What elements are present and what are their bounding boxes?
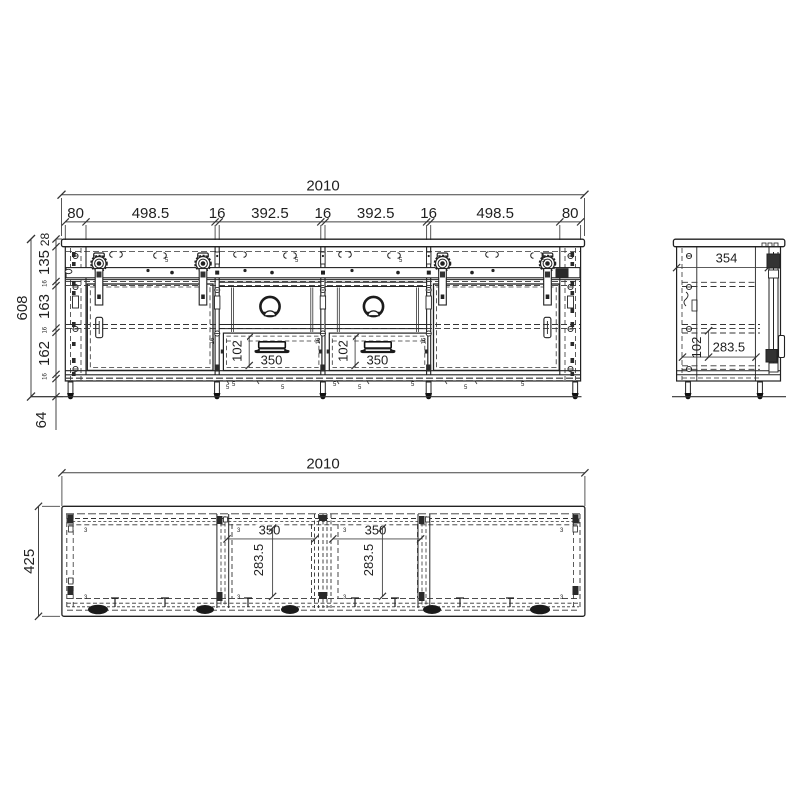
- svg-text:392.5: 392.5: [251, 205, 289, 222]
- svg-text:425: 425: [21, 549, 38, 574]
- svg-text:64: 64: [33, 412, 50, 429]
- svg-text:3: 3: [84, 595, 88, 601]
- svg-text:80: 80: [67, 205, 84, 222]
- svg-text:5: 5: [281, 385, 285, 391]
- svg-text:5: 5: [358, 385, 362, 391]
- svg-text:3: 3: [343, 528, 347, 534]
- svg-text:2010: 2010: [306, 178, 339, 195]
- svg-text:3: 3: [560, 595, 564, 601]
- svg-text:16: 16: [316, 337, 322, 344]
- svg-text:498.5: 498.5: [476, 205, 514, 222]
- svg-text:608: 608: [14, 295, 31, 320]
- svg-text:350: 350: [261, 353, 283, 368]
- svg-text:135: 135: [36, 250, 53, 275]
- svg-text:5: 5: [464, 385, 468, 391]
- svg-text:16: 16: [209, 205, 226, 222]
- svg-text:350: 350: [259, 523, 281, 538]
- svg-text:5: 5: [399, 258, 403, 264]
- svg-text:3: 3: [560, 528, 564, 534]
- svg-text:392.5: 392.5: [357, 205, 395, 222]
- svg-text:498.5: 498.5: [132, 205, 170, 222]
- svg-text:283.5: 283.5: [251, 544, 266, 577]
- svg-text:3: 3: [84, 528, 88, 534]
- svg-text:102: 102: [689, 337, 704, 359]
- svg-text:16: 16: [422, 337, 428, 344]
- svg-text:16: 16: [420, 205, 437, 222]
- svg-text:3: 3: [237, 528, 241, 534]
- svg-text:5: 5: [333, 382, 337, 388]
- svg-text:3: 3: [237, 595, 241, 601]
- svg-text:80: 80: [562, 205, 579, 222]
- svg-text:102: 102: [230, 340, 245, 362]
- svg-text:350: 350: [367, 353, 389, 368]
- svg-text:102: 102: [335, 340, 350, 362]
- svg-text:162: 162: [36, 341, 53, 366]
- svg-text:16: 16: [43, 326, 49, 333]
- svg-text:5: 5: [411, 382, 415, 388]
- svg-text:2010: 2010: [306, 456, 339, 473]
- svg-text:283.5: 283.5: [361, 544, 376, 577]
- svg-text:163: 163: [36, 294, 53, 319]
- svg-text:16: 16: [43, 373, 49, 380]
- svg-text:16: 16: [43, 280, 49, 287]
- svg-text:5: 5: [165, 258, 169, 264]
- svg-text:3: 3: [343, 595, 347, 601]
- svg-text:283.5: 283.5: [713, 340, 746, 355]
- svg-text:350: 350: [365, 523, 387, 538]
- svg-text:16: 16: [315, 205, 332, 222]
- svg-text:354: 354: [716, 251, 738, 266]
- svg-text:5: 5: [226, 385, 230, 391]
- svg-text:5: 5: [232, 382, 236, 388]
- svg-text:28: 28: [38, 233, 52, 247]
- svg-text:5: 5: [295, 258, 299, 264]
- svg-text:5: 5: [521, 382, 525, 388]
- svg-text:16: 16: [210, 337, 216, 344]
